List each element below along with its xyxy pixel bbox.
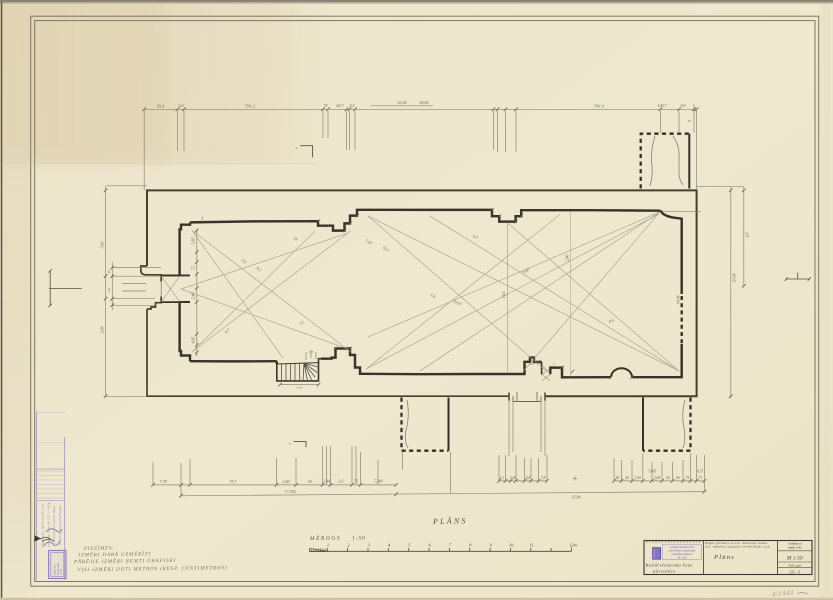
svg-text:krājuma lieta Nr 215 — 43 g.: krājuma lieta Nr 215 — 43 g. (46, 501, 50, 547)
svg-text:12m: 12m (569, 543, 577, 548)
svg-text:65: 65 (666, 476, 670, 480)
svg-text:73: 73 (698, 476, 702, 480)
svg-text:PLĀNS: PLĀNS (432, 516, 468, 526)
svg-text:baznīcas ēkas uzmērījums: baznīcas ēkas uzmērījums (58, 504, 62, 545)
svg-text:1943. gads: 1943. gads (788, 563, 802, 567)
svg-text:60: 60 (616, 476, 620, 480)
svg-text:24: 24 (309, 349, 313, 353)
svg-text:92: 92 (308, 479, 312, 484)
svg-text:Kultūrvēsturisku lietu: Kultūrvēsturisku lietu (645, 563, 693, 568)
svg-text:zīmēja 1943: zīmēja 1943 (788, 546, 802, 549)
svg-text:Plāns: Plāns (713, 554, 735, 561)
svg-text:pārvaldes: pārvaldes (652, 569, 676, 574)
svg-text:Nr. 215: Nr. 215 (678, 555, 687, 559)
svg-text:28: 28 (529, 362, 533, 366)
svg-text:Latvijas arhitektūras: Latvijas arhitektūras (670, 545, 695, 549)
svg-text:IZMĒRI DABĀ UZMĒRĪTI: IZMĒRI DABĀ UZMĒRĪTI (77, 551, 151, 558)
svg-text:1: 1 (327, 543, 329, 548)
svg-text:M 1:50: M 1:50 (786, 555, 803, 561)
svg-text:11: 11 (529, 543, 533, 548)
svg-text:MĒROGS: MĒROGS (309, 534, 341, 542)
svg-text:1:50: 1:50 (352, 536, 366, 542)
svg-text:40: 40 (107, 270, 111, 274)
svg-text:45: 45 (687, 119, 691, 123)
svg-text:PIEZĪMES:: PIEZĪMES: (83, 545, 115, 551)
svg-text:a: a (289, 442, 291, 446)
svg-text:Uzmērīja un: Uzmērīja un (788, 543, 802, 546)
svg-text:a: a (296, 146, 298, 150)
svg-text:bij. apbūves gabala uzmērījums: bij. apbūves gabala uzmērījums ark. (705, 545, 771, 549)
svg-text:pieminekļu inspekcijas: pieminekļu inspekcijas (669, 549, 696, 553)
svg-text:65: 65 (676, 476, 680, 480)
svg-text:1943: 1943 (60, 568, 63, 574)
svg-text:75: 75 (324, 103, 328, 108)
svg-text:materiālu krājums: materiālu krājums (671, 552, 693, 556)
svg-text:25—1: 25—1 (789, 569, 800, 574)
svg-text:40: 40 (625, 476, 629, 480)
svg-text:73: 73 (686, 476, 690, 480)
svg-text:75: 75 (354, 478, 358, 483)
